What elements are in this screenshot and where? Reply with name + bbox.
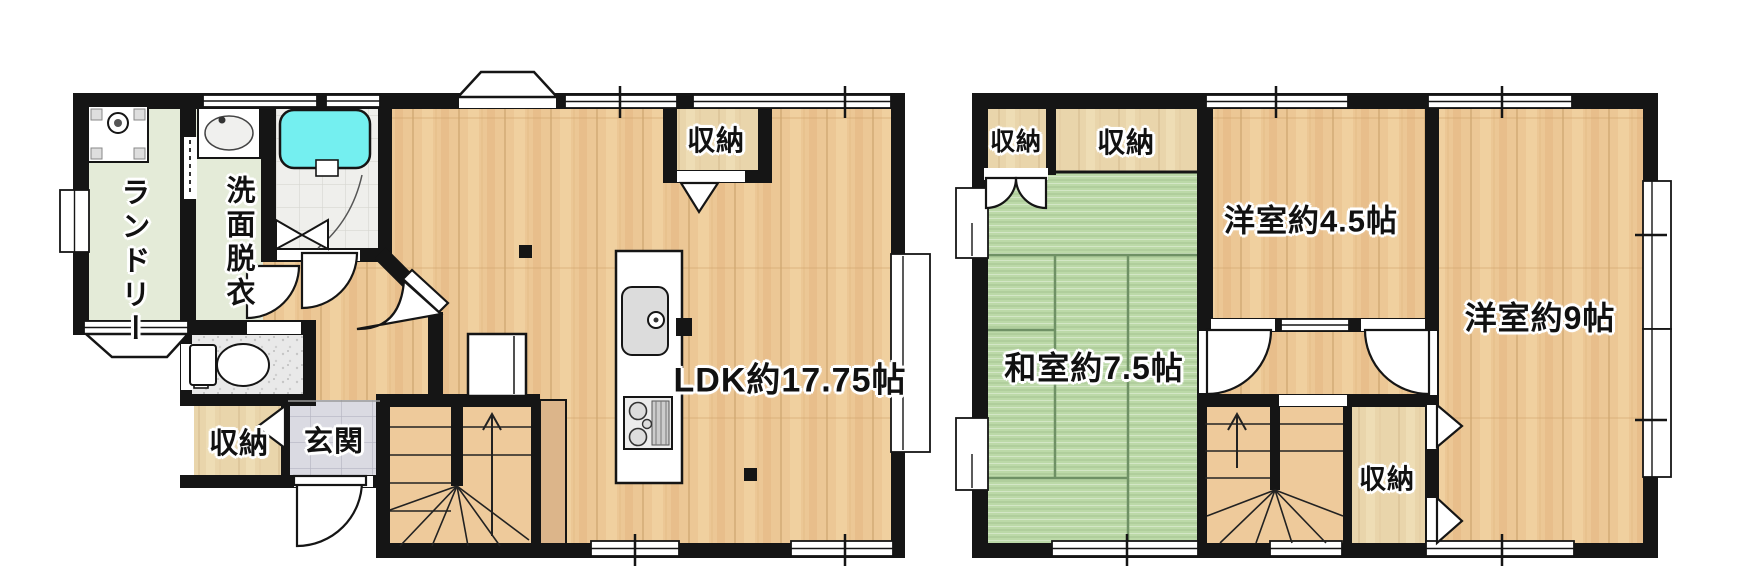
pillar: [744, 468, 757, 481]
room-label-entrance: 玄関: [304, 418, 364, 460]
bay-window-top: [458, 72, 557, 97]
front-door-leaf: [294, 476, 366, 485]
washing-machine-icon: [88, 106, 148, 162]
floor-plan-page: ランドリー 洗面脱衣 収納 玄関 収納 LDK約17.75帖 収納 収納 洋室約…: [0, 0, 1737, 586]
front-door-arc: [297, 481, 362, 546]
room-label-closet-a: 収納: [990, 122, 1042, 158]
vanity-sink-icon: [198, 108, 260, 158]
room-label-western-45: 洋室約4.5帖: [1224, 196, 1398, 241]
stairs-1f-rail: [540, 400, 566, 548]
pillar: [519, 245, 532, 258]
toilet-icon: [190, 344, 269, 386]
room-label-japanese-75: 和室約7.5帖: [1004, 343, 1184, 389]
room-label-closet-b: 収納: [1097, 121, 1155, 161]
room-label-ldk: LDK約17.75帖: [674, 353, 907, 402]
room-label-washroom: 洗面脱衣: [217, 175, 259, 311]
refrigerator-icon: [468, 334, 526, 396]
room-label-ldk-closet: 収納: [687, 119, 745, 159]
room-label-closet-c: 収納: [1359, 458, 1415, 497]
room-label-western-9: 洋室約9帖: [1465, 293, 1616, 339]
room-label-storage-1f: 収納: [209, 420, 269, 462]
stove-icon: [624, 397, 672, 449]
room-label-laundry: ランドリー: [112, 177, 154, 347]
